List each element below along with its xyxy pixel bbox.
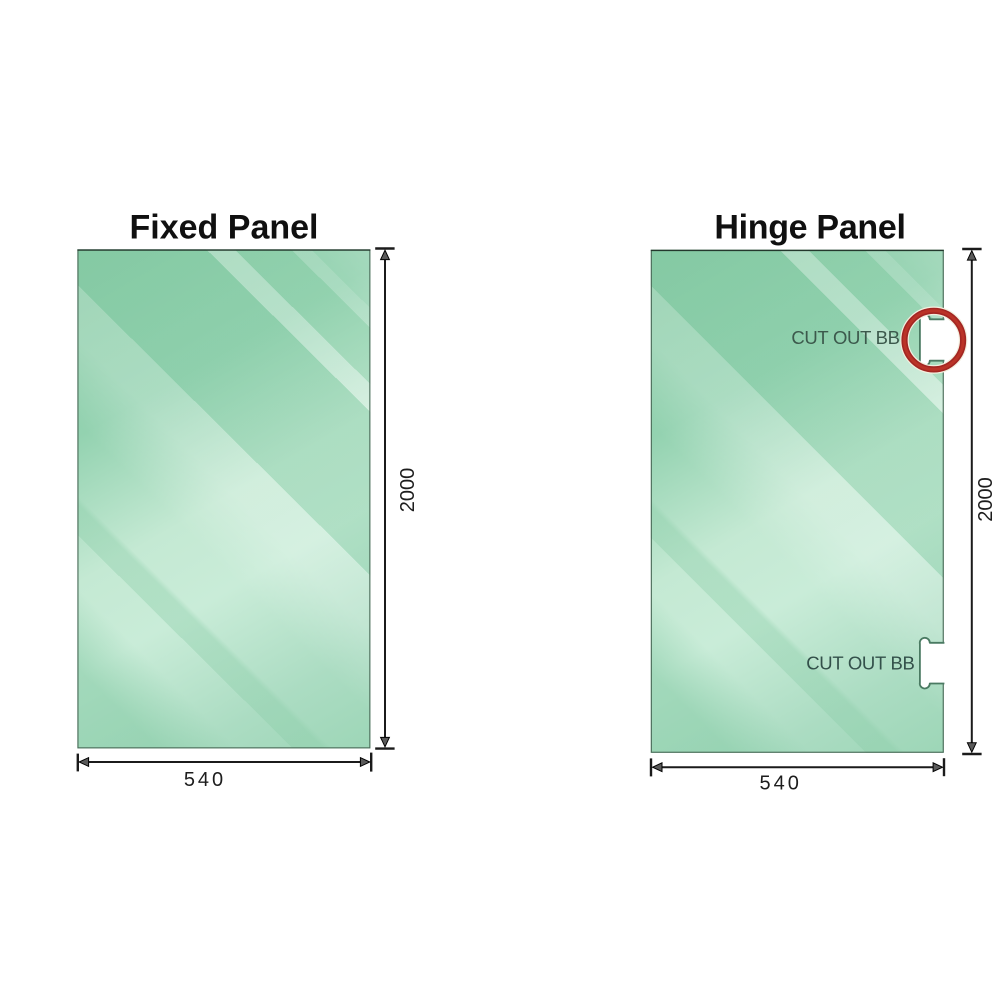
svg-text:540: 540: [760, 773, 802, 795]
svg-text:Fixed Panel: Fixed Panel: [130, 209, 319, 247]
svg-text:CUT OUT BB: CUT OUT BB: [806, 653, 914, 674]
svg-text:540: 540: [184, 769, 226, 791]
svg-text:2000: 2000: [397, 468, 419, 513]
svg-text:Hinge Panel: Hinge Panel: [714, 209, 905, 247]
svg-text:2000: 2000: [975, 477, 997, 522]
svg-text:CUT OUT BB: CUT OUT BB: [791, 327, 899, 348]
